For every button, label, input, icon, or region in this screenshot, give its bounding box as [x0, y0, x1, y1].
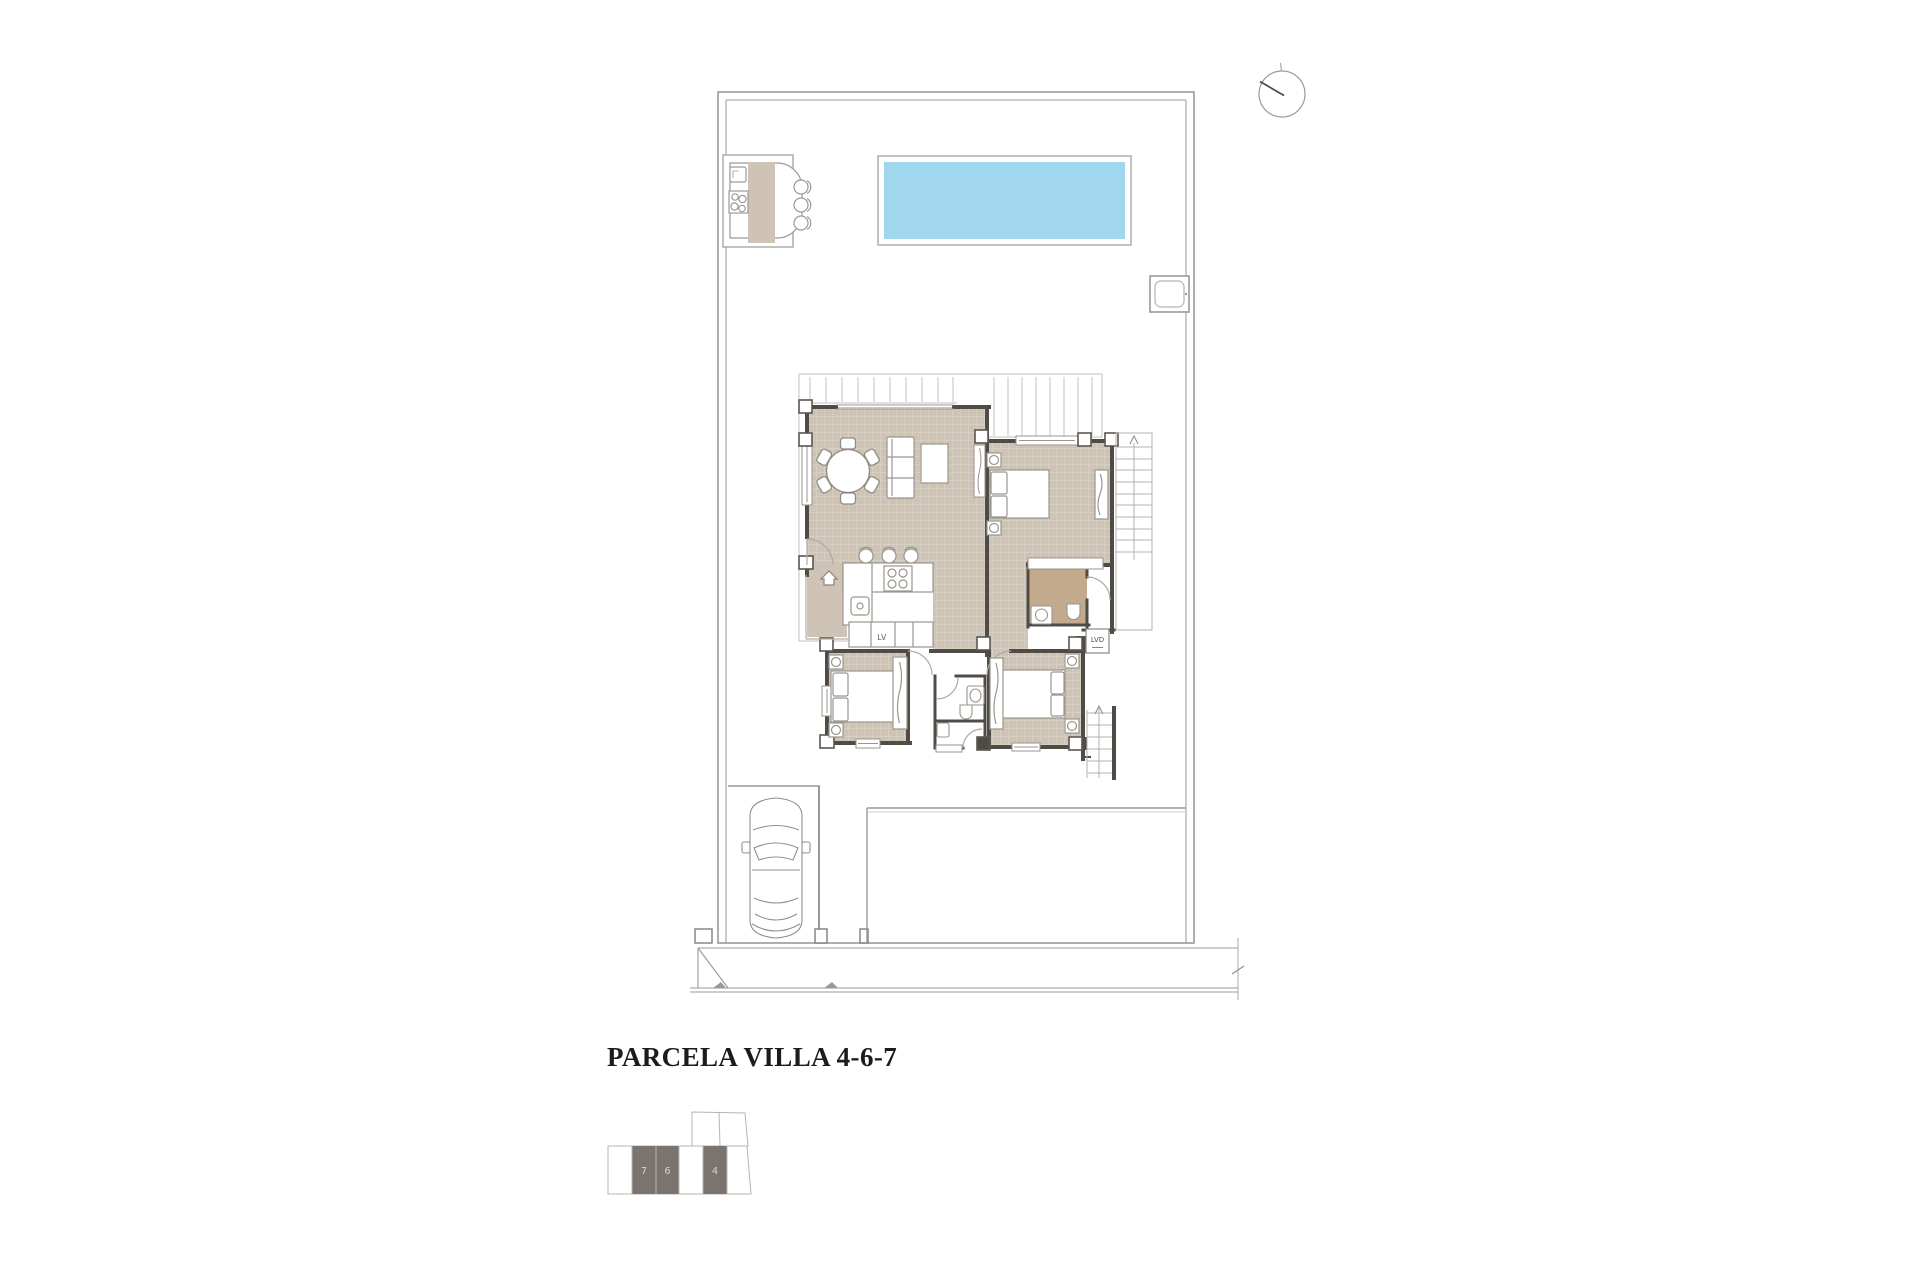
pergola-beams-right: [994, 377, 1092, 436]
outdoor-cooktop: [729, 191, 748, 213]
sidewalk-band: [690, 938, 1244, 1000]
floor-plan-page: LV: [0, 0, 1920, 1280]
page-title: PARCELA VILLA 4-6-7: [607, 1042, 897, 1073]
key-plan-unit-4: 4: [712, 1166, 718, 1177]
kitchen-counter-bottom: [849, 622, 933, 647]
gate-pier: [815, 929, 827, 943]
stairs-upper: [1116, 433, 1152, 630]
wardrobe: [893, 657, 907, 729]
dishwasher-label: LV: [877, 633, 887, 642]
kitchen-sink: [851, 597, 869, 615]
ensuite-toilet: [1067, 604, 1080, 620]
site-plan-drawing: LV: [0, 0, 1920, 1280]
toilet: [960, 705, 972, 719]
swimming-pool: [878, 156, 1131, 245]
kitchen-counter-left: [843, 563, 872, 625]
pergola-beams-left: [810, 377, 953, 402]
kitchen-stools: [859, 547, 918, 563]
outdoor-shower: [1150, 276, 1189, 312]
outdoor-kitchen: [723, 155, 811, 247]
key-plan: 7 6 4: [608, 1112, 751, 1194]
wardrobe: [990, 658, 1003, 729]
coffee-table: [921, 444, 948, 483]
sofa: [887, 437, 914, 498]
gate-pier: [695, 929, 712, 943]
patio: [867, 808, 1186, 943]
north-indicator-icon: [1259, 63, 1305, 117]
laundry-box: LVD: [1086, 629, 1109, 653]
laundry-label: LVD: [1091, 636, 1104, 644]
key-plan-unit-6: 6: [664, 1166, 670, 1177]
stairs-lower: [1087, 706, 1112, 778]
bar-stools: [794, 180, 811, 230]
key-plan-unit-7: 7: [641, 1166, 647, 1177]
car-icon: [742, 798, 810, 938]
cooktop: [884, 566, 912, 591]
outdoor-sink: [730, 167, 746, 182]
